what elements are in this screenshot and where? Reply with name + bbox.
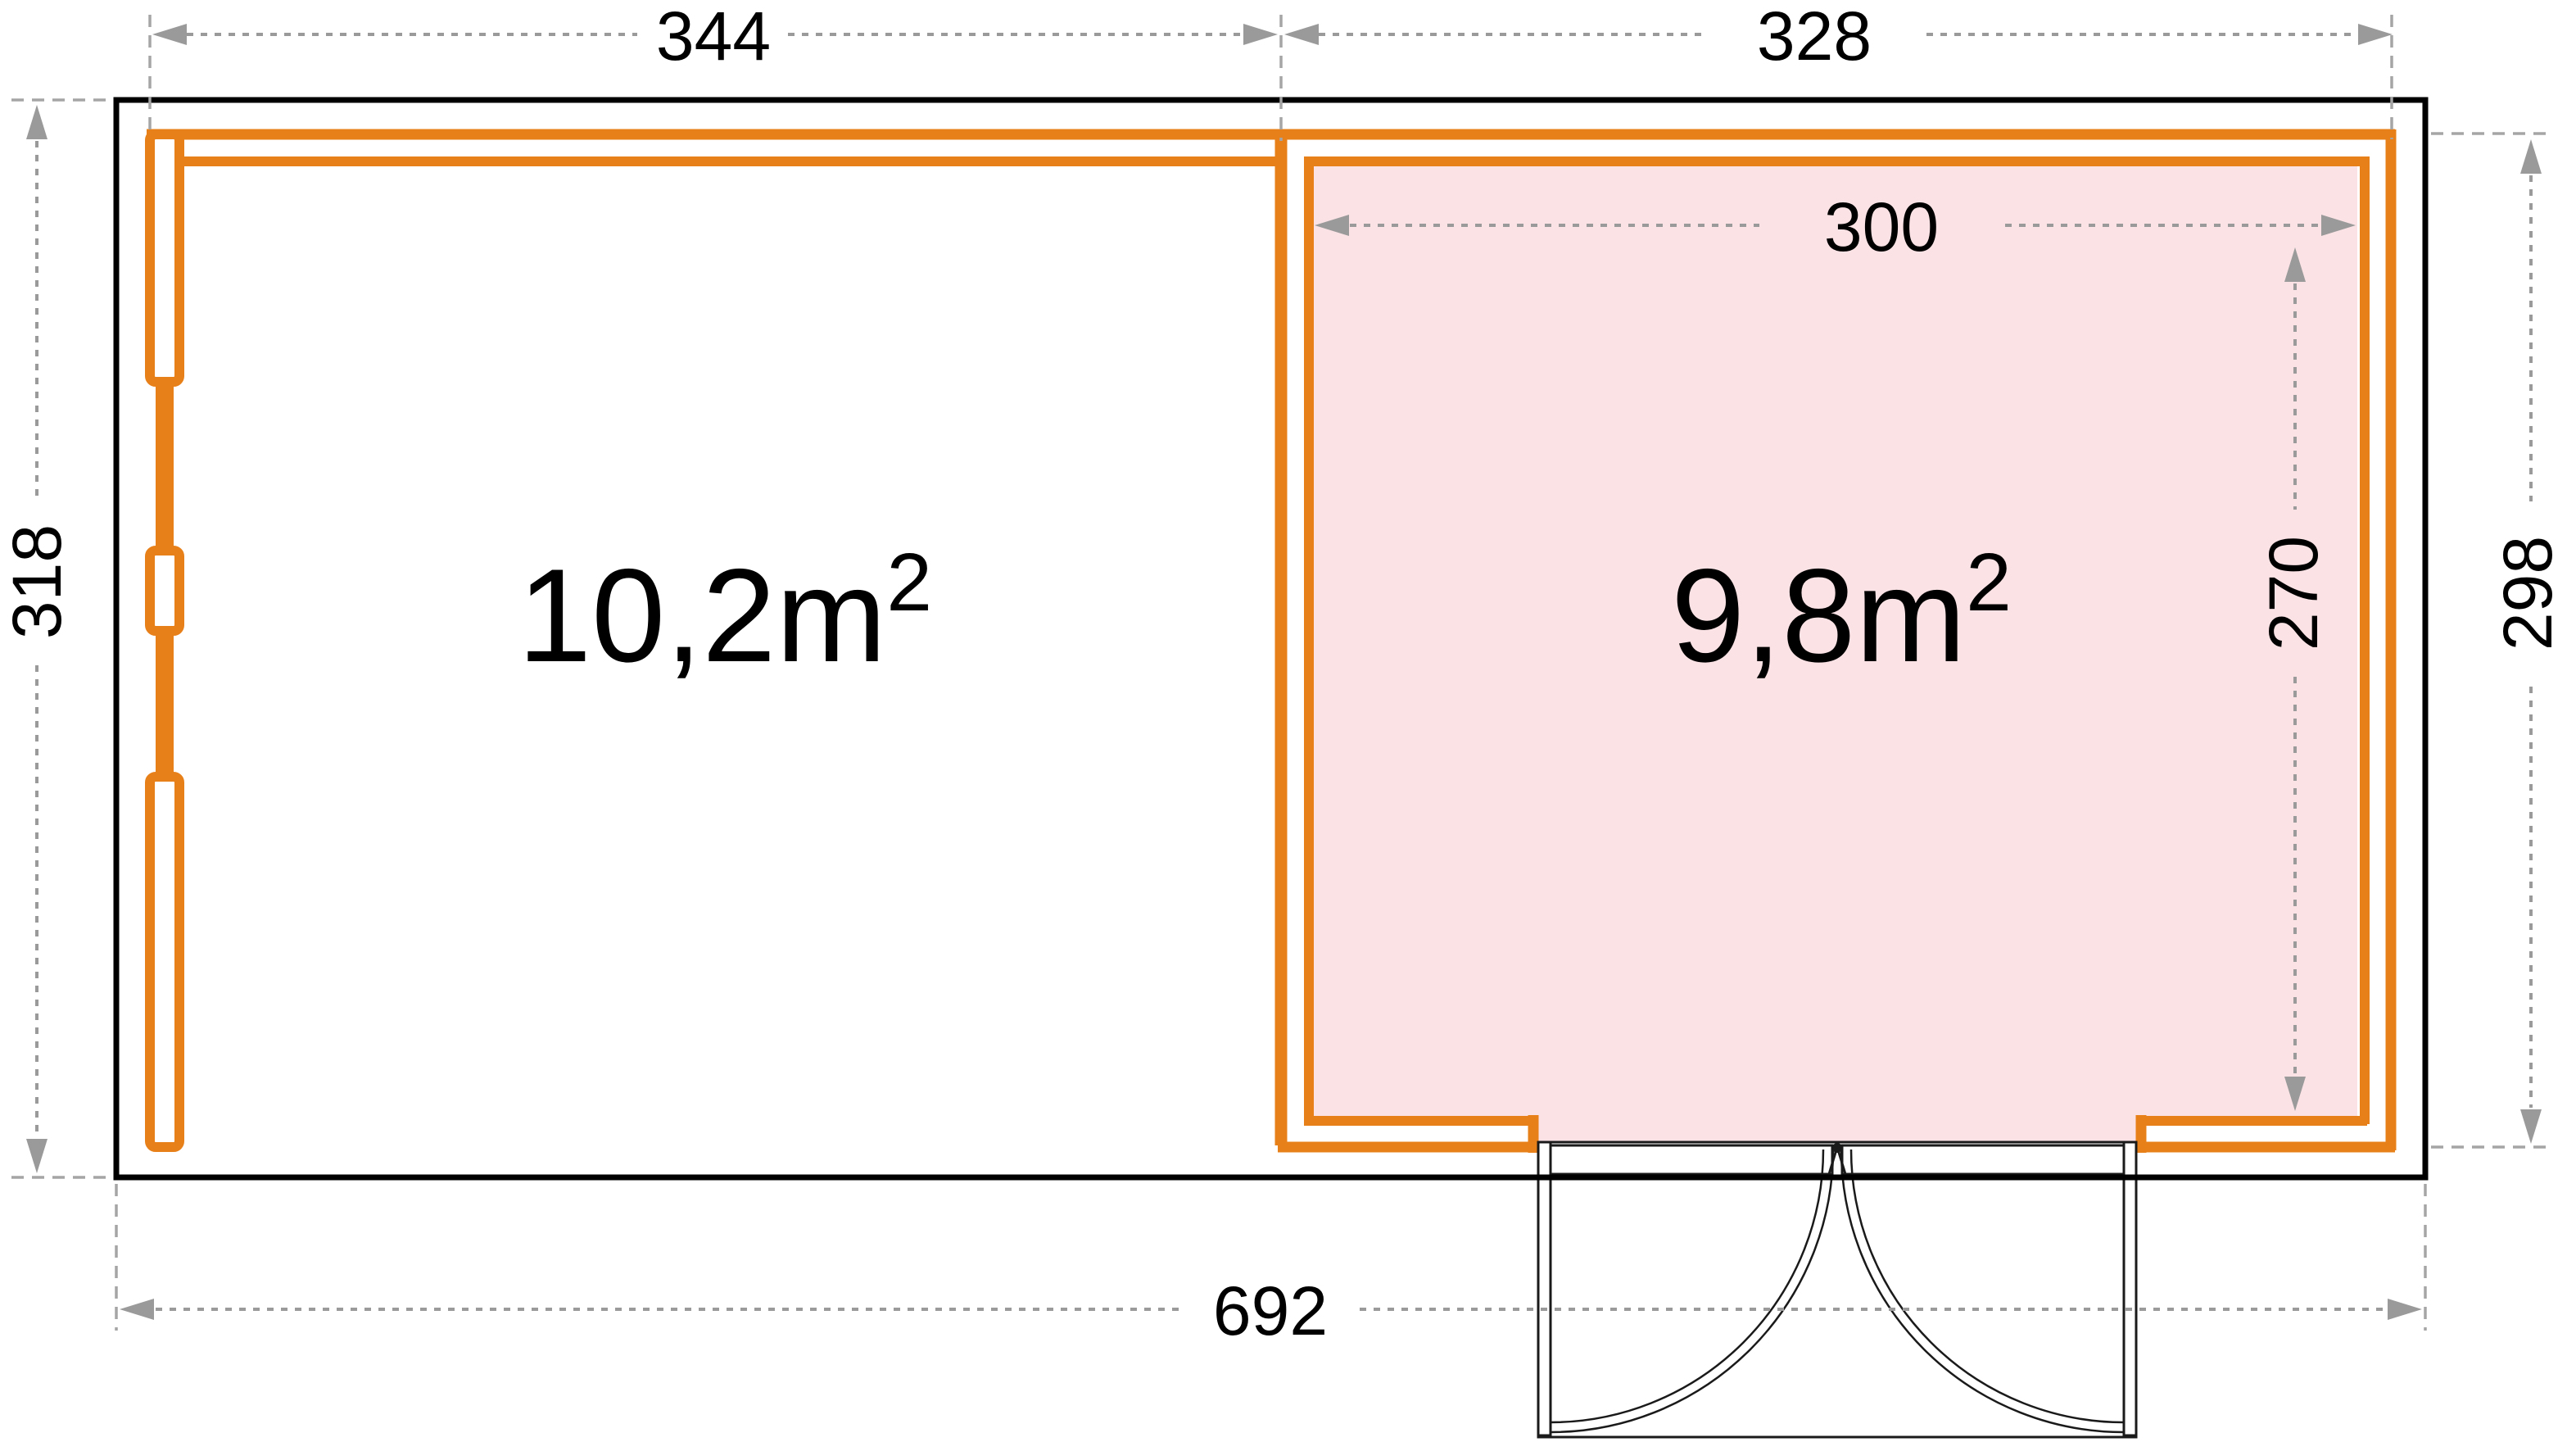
double-door: [1538, 1142, 2136, 1437]
arrow-318-bottom: [26, 1139, 48, 1173]
left-room-area-exponent: 2: [886, 537, 932, 628]
door-leaf-closed-right: [1842, 1145, 2124, 1174]
arrow-692-left: [120, 1299, 154, 1320]
arrow-298-bottom: [2520, 1109, 2542, 1144]
left-room-area-label: 10,2m2: [518, 550, 932, 682]
arrow-328-left: [1284, 24, 1319, 45]
left-wall-window-top: [150, 134, 179, 382]
right-room-area-exponent: 2: [1966, 537, 2012, 628]
floor-plan-canvas: 344 328 300 318 298 270 692 10,2m2 9,8m2: [0, 0, 2576, 1442]
arrow-344-left: [152, 24, 187, 45]
arrow-298-top: [2520, 139, 2542, 174]
dim-label-328: 328: [1749, 2, 1880, 70]
door-leaf-open-right: [2124, 1142, 2136, 1435]
arrow-318-top: [26, 105, 48, 139]
arrow-344-right: [1243, 24, 1278, 45]
dim-label-344: 344: [648, 2, 779, 70]
door-leaf-open-left: [1538, 1142, 1551, 1435]
left-wall-window-bottom: [150, 777, 179, 1147]
dim-label-692: 692: [1205, 1276, 1336, 1345]
dim-label-298: 298: [2493, 536, 2562, 651]
dim-label-318: 318: [2, 524, 71, 639]
dim-label-270: 270: [2259, 536, 2328, 651]
floor-plan-drawing: [0, 0, 2576, 1442]
right-room-area-label: 9,8m2: [1671, 550, 2012, 682]
right-room-area-value: 9,8m: [1671, 542, 1966, 690]
left-room-area-value: 10,2m: [518, 542, 886, 690]
arrow-328-right: [2358, 24, 2393, 45]
dim-label-300: 300: [1816, 193, 1947, 261]
door-leaf-closed-left: [1551, 1145, 1832, 1174]
arrow-692-right: [2388, 1299, 2422, 1320]
left-wall-window-middle: [150, 551, 179, 631]
right-room-fill-door-span: [1538, 1114, 2136, 1144]
door-swing-frame: [1538, 1142, 2136, 1437]
